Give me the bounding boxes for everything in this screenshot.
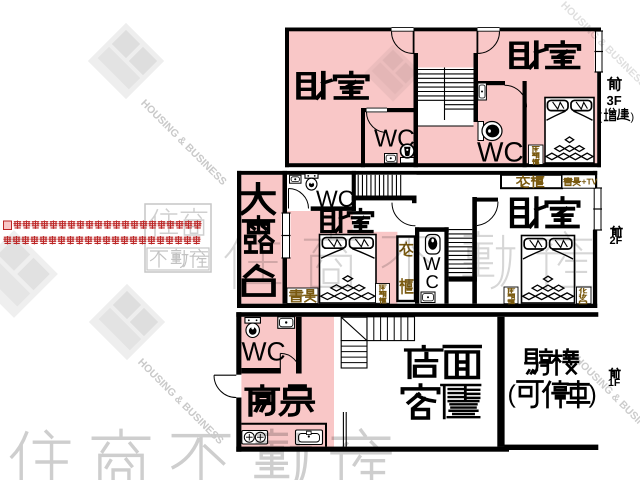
svg-text:2F: 2F xyxy=(610,235,623,247)
svg-text:3F: 3F xyxy=(607,93,622,108)
svg-text:WC: WC xyxy=(316,186,354,212)
svg-text:): ) xyxy=(631,112,635,124)
svg-text:(: ( xyxy=(599,112,603,124)
svg-text:(: ( xyxy=(508,381,517,409)
svg-text:WC: WC xyxy=(477,137,524,168)
svg-text:C: C xyxy=(426,271,439,292)
svg-text:+TV: +TV xyxy=(582,177,598,187)
svg-text:WC: WC xyxy=(242,337,286,367)
